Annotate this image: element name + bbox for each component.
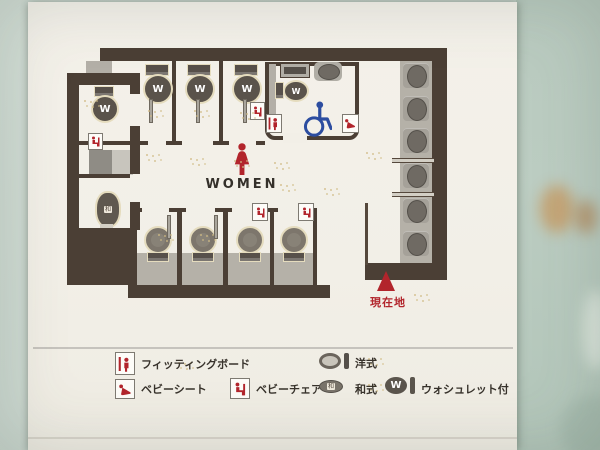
wall [67,73,79,230]
washlet-letter: W [285,82,307,100]
sign-board: W W 和 W [28,2,517,450]
stall-divider [177,208,182,285]
sink [314,62,342,81]
counter-divider [392,158,434,163]
sink-basin [407,165,427,188]
wall [169,208,186,212]
washlet-letter: W [234,76,260,102]
braille-dots [366,152,368,154]
squat-step [100,224,113,228]
baby-chair-icon [252,203,268,221]
washlet-icon: W [385,377,407,394]
japanese-toilet-icon: 和 [319,380,343,393]
washlet-toilet-icon: W [275,80,307,100]
sink-basin [407,98,427,121]
baby-chair-icon [230,378,250,399]
baby-chair-icon [250,102,265,120]
wall [166,141,182,145]
stall-divider [172,61,176,145]
baby-chair-icon [88,133,103,150]
braille-dots [234,160,236,162]
washlet-letter: W [93,97,117,121]
japanese-style-letter: 和 [327,383,335,390]
wall [133,208,142,212]
open-door [196,99,200,123]
sink [403,96,429,121]
changing-counter [280,63,310,78]
braille-dots [324,188,326,190]
sink [403,231,429,256]
counter-divider [392,192,434,197]
braille-dots [274,162,276,164]
wall [128,285,330,298]
open-door [243,99,247,123]
sink [403,198,429,223]
wall [213,141,229,145]
wall [215,208,232,212]
braille-dots [194,110,196,112]
wheelchair-icon [300,100,332,138]
legend-label-fitting-board: フィッティングボード [141,356,250,372]
legend-label-japanese-style: 和式 [355,381,377,397]
braille-dots [158,234,160,236]
braille-dots [146,154,148,156]
wall [130,126,140,174]
washlet-toilet-icon: W [91,86,117,122]
braille-dots [190,158,192,160]
wall [130,73,140,94]
wall [79,141,130,145]
japanese-toilet-icon: 和 [95,191,121,228]
washlet-tank [410,377,415,394]
legend-label-washlet: ウォシュレット付 [421,381,509,397]
washlet-toilet-icon: W [231,64,259,102]
open-door [214,215,218,239]
sink-basin [318,64,340,80]
western-toilet-tank [344,353,349,369]
braille-dots [280,184,282,186]
braille-dots [414,294,416,296]
washlet-letter: W [187,76,213,102]
braille-dots [148,110,150,112]
wall [432,48,447,280]
western-toilet-icon [280,226,306,262]
wall [140,141,148,145]
fitting-board-icon [266,114,282,133]
sink [403,63,429,88]
fitting-board-icon [115,352,135,375]
reflection-blob [575,200,597,234]
legend-label-baby-seat: ベビーシート [141,381,207,397]
women-label: WOMEN [204,177,280,192]
baby-seat-icon [115,379,135,399]
washlet-letter: W [390,380,401,391]
western-toilet-icon [236,226,262,262]
stall-divider [219,61,223,145]
japanese-style-letter: 和 [104,206,112,213]
wall [100,48,447,61]
wall [133,208,137,285]
legend-label-baby-chair: ベビーチェア [256,381,322,397]
baby-seat-icon [342,114,359,133]
current-location-marker [377,271,395,291]
braille-dots [84,100,86,102]
counter-top [284,67,306,74]
wall-corner-block [67,228,133,285]
sink-basin [407,233,427,256]
reflection-blob [540,185,574,233]
washlet-toilet-icon: W [184,64,212,102]
braille-dots [200,234,202,236]
sink-basin [407,200,427,223]
sink-basin [407,130,427,153]
stall-divider [270,208,274,285]
open-door [167,215,171,239]
entrance-wall [365,203,368,265]
utility-closet [89,150,112,175]
western-toilet-icon [319,353,341,369]
braille-dots [240,112,242,114]
sink [403,128,429,153]
washlet-toilet-icon: W [142,64,170,102]
wall [256,141,265,145]
legend-label-western-style: 洋式 [355,355,377,371]
legend-divider [33,347,513,349]
current-location-label: 現在地 [370,294,406,310]
board-edge [28,437,517,439]
baby-chair-icon [298,203,314,221]
western-toilet-icon [189,226,215,262]
stall-divider [223,208,228,285]
photo-of-restroom-map-sign: W W 和 W [0,0,600,450]
wall [79,174,130,178]
sink [403,163,429,188]
sink-basin [407,65,427,88]
